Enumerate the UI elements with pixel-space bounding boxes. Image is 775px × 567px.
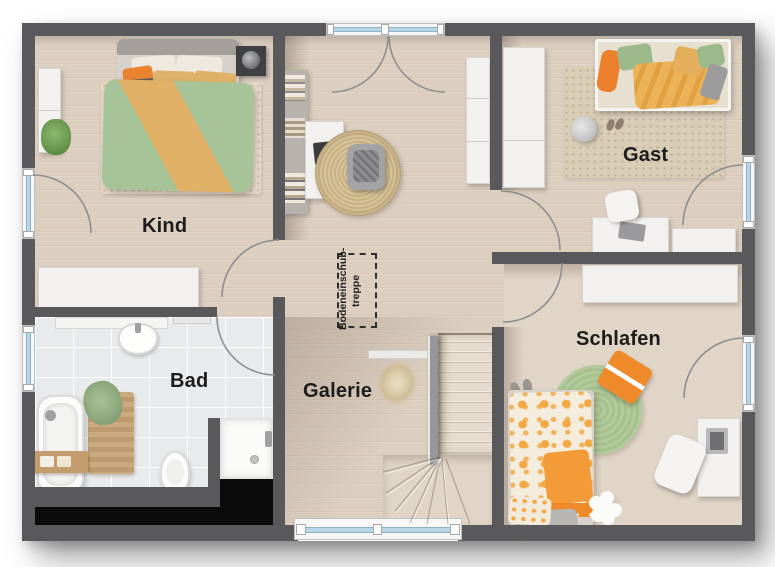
door-arc-schlafen — [503, 263, 562, 322]
door-arc-kind — [222, 240, 279, 297]
window-swing-kind — [33, 175, 91, 233]
attic-hatch-label-line1: Bodeneinschub- — [337, 252, 350, 330]
room-label-schlafen: Schlafen — [576, 328, 661, 351]
door-arc-gast — [501, 191, 560, 250]
window-swing-top-left — [332, 36, 388, 92]
window-swing-top-right — [389, 36, 445, 92]
floor-plan: Bodeneinschub- treppe Kind Gast Bad Gale… — [22, 23, 755, 541]
room-label-kind: Kind — [142, 215, 187, 238]
window-swing-gast — [683, 165, 743, 225]
floor-plan-page: Bodeneinschub- treppe Kind Gast Bad Gale… — [0, 0, 775, 567]
attic-hatch-label-line2: treppe — [350, 252, 363, 330]
attic-hatch-label: Bodeneinschub- treppe — [337, 252, 377, 330]
room-label-bad: Bad — [170, 370, 208, 393]
window-swing-schlafen — [684, 338, 744, 398]
door-swing-overlay — [22, 23, 755, 541]
door-arc-bad — [217, 317, 275, 375]
room-label-gast: Gast — [623, 144, 668, 167]
room-label-galerie: Galerie — [303, 380, 372, 403]
attic-hatch-box: Bodeneinschub- treppe — [337, 253, 377, 328]
